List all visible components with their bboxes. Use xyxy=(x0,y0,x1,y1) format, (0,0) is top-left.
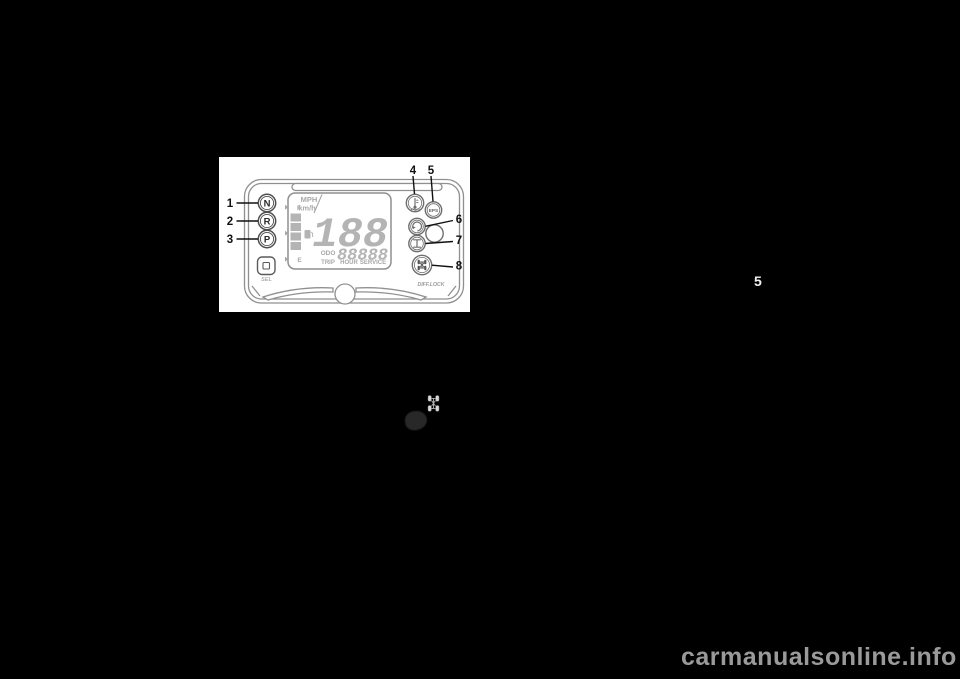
diff-lock-indicator xyxy=(412,255,431,274)
gear-indicator-light xyxy=(409,235,425,251)
instrument-cluster-diagram: N R P SEL MPH km/h xyxy=(219,157,470,312)
fuel-empty-label: E xyxy=(297,257,302,264)
bottom-right-wing xyxy=(356,288,426,300)
callout-4: 4 xyxy=(410,165,417,177)
diff-lock-label: DIFF.LOCK xyxy=(417,282,445,288)
callout-7: 7 xyxy=(456,235,462,247)
fuel-bar-segment xyxy=(291,223,302,231)
coolant-temperature-indicator xyxy=(406,194,423,211)
park-indicator: P xyxy=(258,230,275,247)
bottom-left-wing xyxy=(263,288,333,300)
neutral-indicator: N xyxy=(258,194,275,211)
odo-label: ODO xyxy=(321,250,336,257)
top-vent-slot xyxy=(292,184,442,191)
callout-8: 8 xyxy=(456,261,463,273)
fuel-full-label: F xyxy=(297,205,301,212)
select-button: SEL xyxy=(258,257,276,283)
select-button-label: SEL xyxy=(261,277,272,283)
trip-label: TRIP xyxy=(321,260,335,266)
instrument-cluster-figure: N R P SEL MPH km/h xyxy=(219,157,470,312)
reverse-indicator-letter: R xyxy=(264,217,271,228)
callout-6: 6 xyxy=(456,214,462,226)
bottom-center-knob xyxy=(335,284,355,304)
eps-warning-indicator: EPS xyxy=(425,202,441,218)
callout-3: 3 xyxy=(227,234,233,246)
blank-indicator xyxy=(426,225,443,242)
fuel-bar-segment xyxy=(291,214,302,222)
indicator-blob-icon xyxy=(404,410,428,432)
reverse-indicator: R xyxy=(258,212,275,229)
diff-lock-mini-icon xyxy=(427,394,440,413)
fuel-bar-segment xyxy=(291,242,302,250)
callout-5: 5 xyxy=(428,165,435,177)
lcd-display: MPH km/h 188 88888 F E xyxy=(285,193,391,269)
watermark: carmanualsonline.info xyxy=(681,643,957,672)
service-label: SERVICE xyxy=(360,260,386,266)
callout-1: 1 xyxy=(227,198,234,210)
drive-mode-indicator xyxy=(409,218,425,234)
fuel-bar-segment xyxy=(291,233,302,241)
chapter-number: 5 xyxy=(754,274,762,288)
park-indicator-letter: P xyxy=(264,235,271,246)
eps-indicator-label: EPS xyxy=(429,208,438,213)
neutral-indicator-letter: N xyxy=(264,199,271,210)
hour-label: HOUR xyxy=(340,260,358,266)
callout-2: 2 xyxy=(227,216,233,228)
